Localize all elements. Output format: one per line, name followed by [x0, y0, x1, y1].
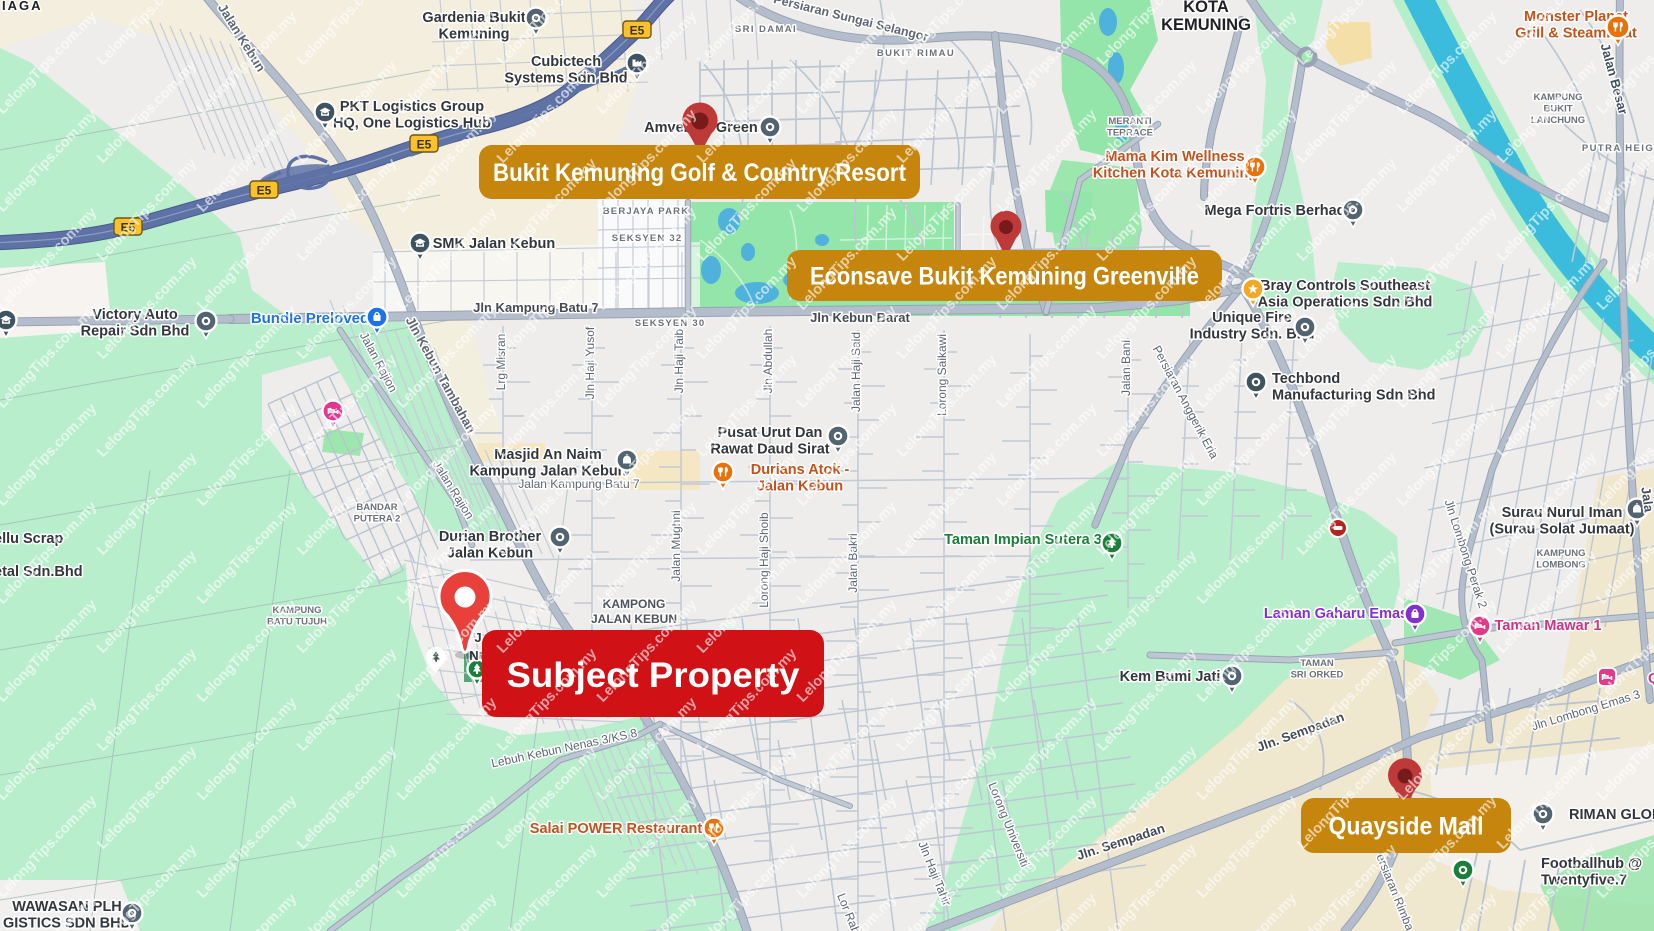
svg-text:Taman Impian Sutera 3: Taman Impian Sutera 3 [944, 532, 1102, 548]
svg-text:Techbond: Techbond [1272, 371, 1340, 387]
svg-text:SRI ORKED: SRI ORKED [1291, 670, 1344, 681]
svg-text:Econsave Bukit Kemuning Greenv: Econsave Bukit Kemuning Greenville [810, 263, 1199, 291]
svg-text:E5: E5 [630, 24, 645, 38]
svg-text:PUTRA HEIG: PUTRA HEIG [1582, 143, 1654, 154]
svg-text:E5: E5 [257, 184, 272, 198]
svg-text:E5: E5 [417, 138, 432, 152]
svg-text:PUTERA 2: PUTERA 2 [354, 514, 401, 525]
svg-text:KEMUNING: KEMUNING [1161, 16, 1251, 34]
svg-text:BERJAYA PARK: BERJAYA PARK [603, 206, 690, 217]
svg-text:RIMAN GLOBA: RIMAN GLOBA [1569, 807, 1654, 823]
svg-text:Mama Kim Wellness: Mama Kim Wellness [1105, 149, 1244, 165]
svg-text:IAGA: IAGA [2, 0, 43, 13]
svg-text:KOTA: KOTA [1183, 0, 1229, 16]
svg-text:BANDAR: BANDAR [356, 502, 397, 513]
svg-text:Mega Fortris Berhad: Mega Fortris Berhad [1205, 203, 1346, 219]
svg-text:Jalan Bani: Jalan Bani [1119, 340, 1133, 396]
svg-text:Quay: Quay [1648, 671, 1654, 687]
svg-text:Rawat Daud Sirat: Rawat Daud Sirat [710, 442, 829, 458]
svg-text:TAMAN: TAMAN [1300, 658, 1334, 669]
